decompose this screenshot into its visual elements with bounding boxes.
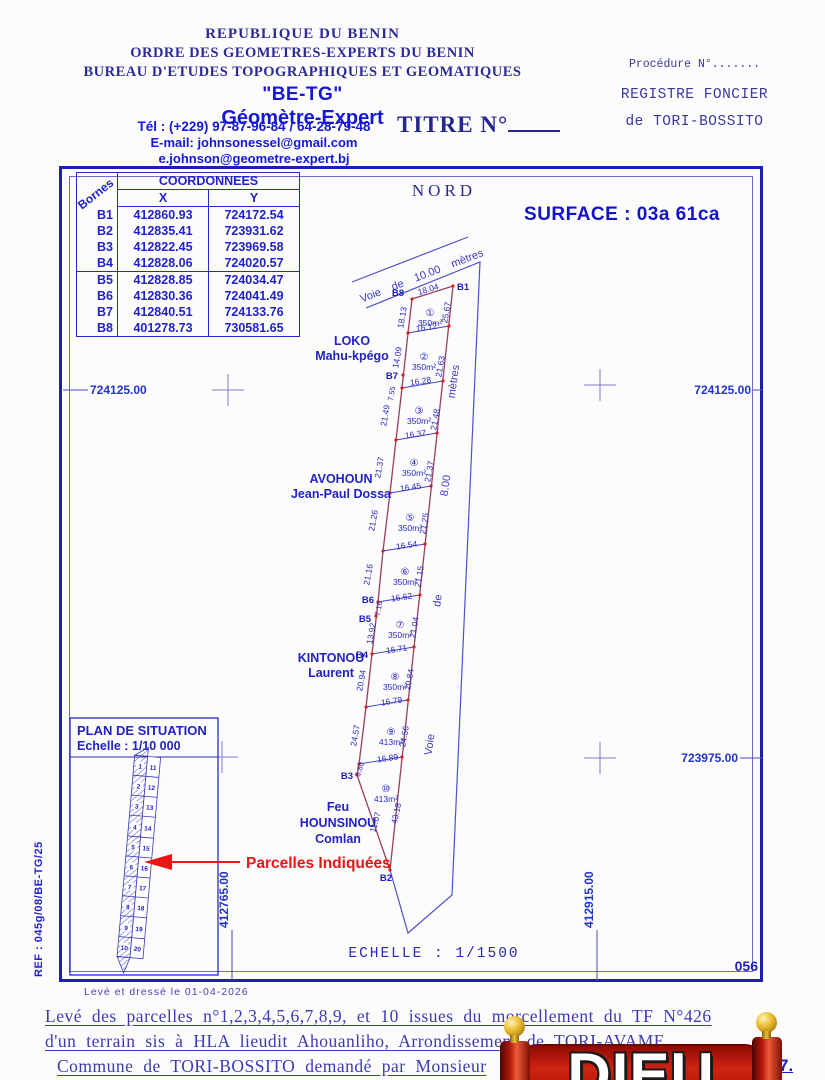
coord-label-724125-left: 724125.00 — [90, 383, 147, 397]
road-right-word-de: de — [431, 594, 445, 608]
inset-title: PLAN DE SITUATION — [77, 723, 207, 738]
dieu-label: DIEU — [523, 1048, 759, 1080]
p1-left: 18.13 — [395, 306, 409, 329]
survey-date-line: Levé et dressé le 01-04-2026 — [84, 986, 249, 998]
table-row: B7412840.51724133.76 — [77, 304, 300, 320]
p5-area: 350m² — [398, 523, 422, 533]
inset-num-18: 18 — [137, 905, 145, 913]
neighbor-loko-2: Mahu-kpégo — [315, 349, 389, 363]
borne-label-b8: B8 — [392, 288, 404, 299]
borne-label-b1: B1 — [457, 282, 470, 293]
neighbor-avohoun-2: Jean-Paul Dossa — [291, 487, 392, 501]
p9-bottom: 16.89 — [376, 751, 399, 764]
coord-label-412765: 412765.00 — [217, 871, 231, 928]
p4-bottom: 16.45 — [399, 480, 422, 493]
p4-area: 350m² — [402, 468, 426, 478]
p7-area: 350m² — [388, 630, 412, 640]
table-row: B8401278.73730581.65 — [77, 320, 300, 337]
p3-left: 21.49 — [378, 404, 392, 427]
order-line: ORDRE DES GEOMETRES-EXPERTS DU BENIN — [20, 45, 585, 62]
p5-bottom: 16.54 — [395, 538, 418, 551]
coord-label-724125-right: 724125.00 — [694, 383, 751, 397]
coord-label-723975: 723975.00 — [681, 751, 738, 765]
scroll-stem-right-icon — [762, 1031, 771, 1039]
registre-commune: de TORI-BOSSITO — [612, 114, 777, 130]
p4-left: 21.37 — [372, 456, 386, 479]
p10-left2: 5.80 — [353, 761, 366, 778]
borne-label-b3: B3 — [341, 771, 353, 782]
col-y-header: Y — [209, 190, 300, 207]
table-corner: Bornes — [77, 173, 118, 207]
inset-num-12: 12 — [147, 785, 155, 793]
borne-label-b7: B7 — [386, 371, 398, 382]
neighbor-hounsinou-2: HOUNSINOU — [300, 816, 376, 830]
parcelles-indiquees-label: Parcelles Indiquées — [246, 855, 391, 872]
p5-left: 21.26 — [366, 509, 380, 532]
p8-bottom: 16.79 — [380, 694, 403, 707]
p7-left2: 7.16 — [373, 601, 384, 617]
neighbor-kintonou: KINTONOU — [298, 651, 364, 665]
p1-top: 18.04 — [416, 281, 440, 297]
inset-num-11: 11 — [149, 765, 157, 773]
document-page: REPUBLIQUE DU BENIN ORDRE DES GEOMETRES-… — [0, 0, 825, 1080]
table-row: B1412860.93724172.54 — [77, 207, 300, 224]
scroll-knob-left-icon — [504, 1016, 525, 1037]
p1-area: 350m² — [418, 318, 442, 328]
p7-left: 13.92 — [364, 622, 378, 645]
procedure-number: Procédure N°....... — [612, 58, 777, 71]
neighbor-kintonou-2: Laurent — [308, 666, 355, 680]
title-number: TITRE N° — [397, 112, 560, 138]
registre-foncier: REGISTRE FONCIER — [612, 87, 777, 103]
p9-area: 413m² — [379, 737, 403, 747]
surface-label: SURFACE : 03a 61ca — [524, 204, 720, 225]
dieu-scroll-stamp: DIEU — [497, 1004, 797, 1080]
neighbor-loko: LOKO — [334, 334, 370, 348]
p2-area: 350m² — [412, 362, 436, 372]
table-row: B5412828.85724034.47 — [77, 272, 300, 289]
scale-label: ECHELLE : 1/1500 — [348, 946, 519, 962]
p2-bottom: 16.28 — [409, 374, 432, 387]
p7-bottom: 16.71 — [385, 642, 408, 655]
inset-num-13: 13 — [146, 804, 154, 812]
inset-num-19: 19 — [135, 926, 143, 934]
sheet-number: 056 — [735, 958, 759, 974]
p6-bottom: 16.62 — [390, 590, 413, 603]
borne-label-b2: B2 — [380, 873, 392, 884]
p6-area: 350m² — [393, 577, 417, 587]
bureau-line: BUREAU D'ETUDES TOPOGRAPHIQUES ET GEOMAT… — [20, 64, 585, 81]
coord-label-412915: 412915.00 — [582, 871, 596, 928]
inset-num-16: 16 — [140, 865, 148, 873]
inset-scale: Echelle : 1/10 000 — [77, 739, 181, 753]
road-right-word-voie: Voie — [423, 733, 438, 756]
scroll-knob-right-icon — [756, 1012, 777, 1033]
table-row: B3412822.45723969.58 — [77, 239, 300, 255]
road-top-label: Voie de 10.00 mètres — [359, 247, 486, 305]
p2-left: 14.09 — [390, 346, 404, 369]
inset-num-15: 15 — [142, 845, 150, 853]
firm-name: "BE-TG" — [20, 84, 585, 106]
p10-area: 413m² — [374, 794, 398, 804]
republic-line: REPUBLIQUE DU BENIN — [20, 26, 585, 43]
road-right-word-800: 8.00 — [439, 474, 454, 497]
title-number-blank — [508, 112, 560, 132]
borne-label-b6: B6 — [362, 595, 374, 606]
p6-left: 21.16 — [361, 563, 375, 586]
inset-num-10: 10 — [120, 945, 128, 953]
inset-num-20: 20 — [133, 946, 141, 954]
coordonnees-header: COORDONNEES — [118, 173, 300, 190]
road-right-word-metres: mètres — [446, 364, 463, 399]
table-row: B6412830.36724041.49 — [77, 288, 300, 304]
title-number-label: TITRE N° — [397, 112, 508, 137]
p9-left: 24.57 — [348, 724, 362, 747]
scroll-stem-left-icon — [510, 1035, 519, 1043]
p3-bottom: 16.37 — [404, 427, 427, 440]
neighbor-hounsinou-3: Comlan — [315, 832, 361, 846]
reference-number: REF : 045g/08/BE-TG/25 — [33, 841, 45, 977]
neighbor-avohoun: AVOHOUN — [310, 472, 373, 486]
col-x-header: X — [118, 190, 209, 207]
north-label: NORD — [412, 181, 476, 200]
coordinates-table: Bornes COORDONNEES X Y B1412860.93724172… — [76, 172, 300, 337]
p3-area: 350m² — [407, 416, 431, 426]
p8-left: 20.94 — [354, 669, 368, 692]
email-line-2: e.johnson@geometre-expert.bj — [23, 151, 485, 166]
inset-num-17: 17 — [139, 885, 147, 893]
table-row: B4412828.06724020.57 — [77, 255, 300, 272]
inset-num-14: 14 — [144, 825, 152, 833]
p10-right: 43.18 — [389, 802, 403, 825]
neighbor-hounsinou-1: Feu — [327, 800, 349, 814]
registre-block: Procédure N°....... REGISTRE FONCIER de … — [612, 58, 777, 130]
p2-left2: 7.55 — [386, 386, 397, 402]
p8-area: 350m² — [383, 682, 407, 692]
table-row: B2412835.41723931.62 — [77, 223, 300, 239]
